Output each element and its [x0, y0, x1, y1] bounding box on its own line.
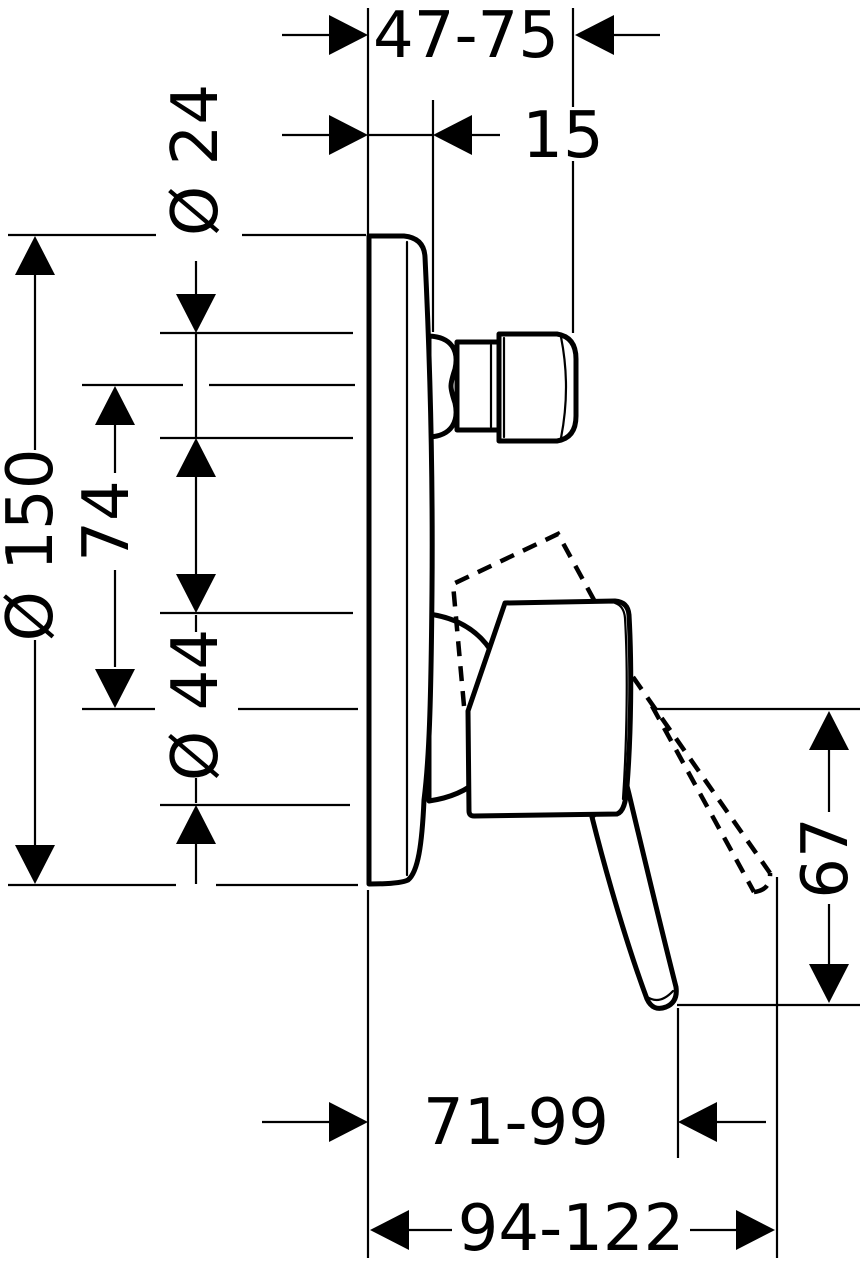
spout-pipe-narrow [457, 342, 499, 430]
dim-d24-label: Ø 24 [159, 84, 233, 236]
arrowhead-left [370, 1210, 409, 1250]
arrowhead-left [433, 115, 472, 155]
arrowhead-up [176, 438, 216, 477]
arrowhead-up [15, 236, 55, 275]
handle-block [468, 601, 631, 816]
dim-94-122-label: 94-122 [458, 1192, 685, 1264]
arrowhead-left [678, 1102, 717, 1142]
dim-71-99-label: 71-99 [423, 1086, 609, 1160]
arrowhead-down [176, 574, 216, 613]
arrowhead-up [809, 711, 849, 750]
dimension-67: 67 [655, 709, 863, 1005]
technical-drawing-canvas: 47-75 15 Ø 24 Ø 150 [0, 0, 863, 1264]
arrowhead-left [575, 15, 614, 55]
dim-d44-label: Ø 44 [159, 629, 233, 781]
dashed-lever-lower-edge [652, 706, 754, 892]
dim-47-75-label: 47-75 [373, 0, 559, 73]
dim-15-label: 15 [522, 99, 603, 173]
dim-67-label: 67 [789, 817, 863, 898]
dimension-94-122: 94-122 [370, 877, 777, 1264]
dimension-d44: Ø 44 [159, 574, 353, 884]
arrowhead-down [176, 294, 216, 333]
dimension-d24: Ø 24 [159, 84, 353, 574]
arrowhead-down [95, 669, 135, 708]
arrowhead-down [809, 964, 849, 1003]
arrowhead-up [176, 805, 216, 844]
arrowhead-right [329, 115, 368, 155]
fixture-outline [369, 236, 676, 1008]
spout-pipe-wide [499, 334, 576, 441]
dimension-15: 15 [282, 99, 604, 332]
arrowhead-right [736, 1210, 775, 1250]
dashed-lever-endcap [754, 873, 770, 892]
arrowhead-right [329, 1102, 368, 1142]
escutcheon-plate [369, 236, 432, 884]
arrowhead-up [95, 386, 135, 425]
mixer-dimension-drawing: 47-75 15 Ø 24 Ø 150 [0, 0, 863, 1264]
dim-d150-label: Ø 150 [0, 449, 68, 642]
arrowhead-right [329, 15, 368, 55]
dim-74-label: 74 [70, 480, 144, 561]
arrowhead-down [15, 845, 55, 884]
